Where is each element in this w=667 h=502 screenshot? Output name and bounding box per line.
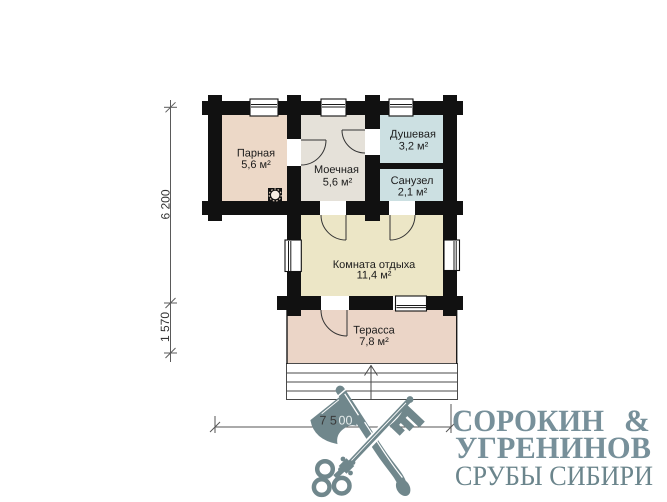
svg-text:Душевая: Душевая — [390, 129, 436, 141]
svg-text:7 5: 7 5 — [320, 414, 337, 428]
svg-text:СРУБЫ СИБИРИ: СРУБЫ СИБИРИ — [455, 461, 653, 492]
svg-text:7,8 м²: 7,8 м² — [359, 336, 389, 348]
svg-text:5,6 м²: 5,6 м² — [323, 177, 353, 189]
svg-text:5,6 м²: 5,6 м² — [241, 159, 271, 171]
svg-text:Санузел: Санузел — [391, 175, 434, 187]
svg-text:6 200: 6 200 — [159, 189, 173, 219]
svg-text:11,4 м²: 11,4 м² — [357, 270, 392, 282]
svg-text:1 570: 1 570 — [158, 312, 172, 342]
svg-text:УГРЕНИНОВ: УГРЕНИНОВ — [455, 430, 651, 465]
svg-text:Терасса: Терасса — [353, 325, 395, 337]
svg-text:Парная: Парная — [237, 148, 275, 160]
svg-text:00: 00 — [339, 414, 353, 428]
svg-text:3,2 м²: 3,2 м² — [399, 141, 429, 153]
svg-text:2,1 м²: 2,1 м² — [398, 187, 428, 199]
svg-text:Моечная: Моечная — [314, 164, 359, 176]
